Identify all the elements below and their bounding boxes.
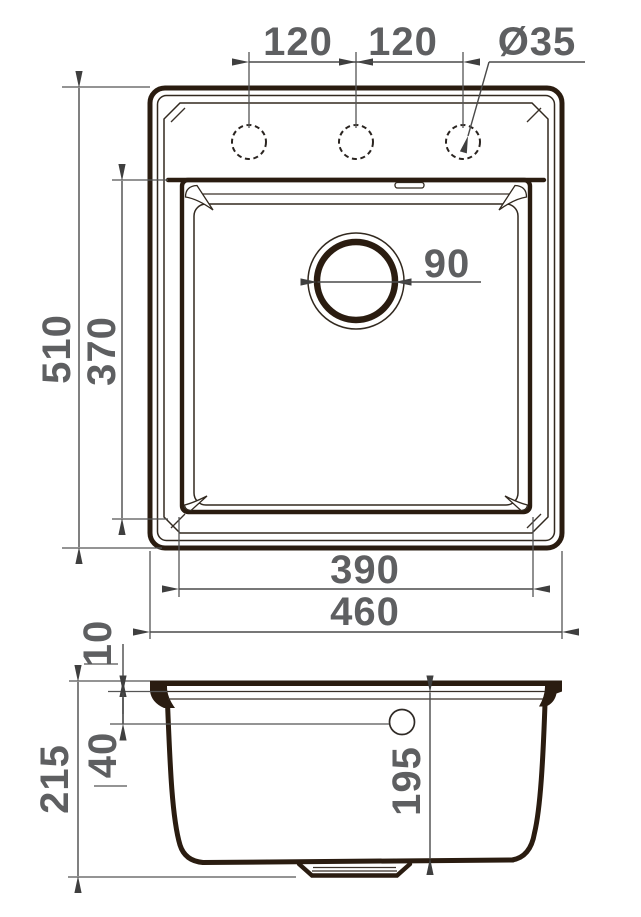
section-wall-left [168,703,204,863]
dim-label-510: 510 [35,314,79,384]
section-drain-boss [299,864,410,876]
drain-flange [308,233,404,329]
deck-corner-diamond-tr [527,108,541,122]
sink-section-view [150,681,562,876]
section-bowl-floor [203,860,513,863]
sink-drawing-canvas: 120 120 Ø35 90 510 370 390 460 [0,0,641,917]
overflow-mark [395,183,424,189]
dim-label-10: 10 [76,620,120,667]
dimension-rim-thickness-10: 10 [69,620,167,714]
sink-top-view [150,88,562,548]
dim-label-370: 370 [80,316,124,386]
dimension-rim-to-overflow-40: 40 [81,693,389,787]
technical-drawing-page: 120 120 Ø35 90 510 370 390 460 [0,0,641,917]
dimension-drain-diameter: 90 [318,242,482,286]
section-wall-right [512,704,545,860]
faucet-hole-left [232,125,266,159]
dimension-bowl-width-390: 390 [179,517,533,597]
dim-label-120-right: 120 [368,20,438,64]
dim-label-460: 460 [330,590,400,634]
overflow-hole [390,710,415,735]
dim-label-195: 195 [385,746,429,816]
deck-corner-diamond-bl [171,514,185,528]
dimension-bowl-length-370: 370 [80,180,168,519]
dim-label-390: 390 [330,548,400,592]
section-rim-top [150,681,562,687]
faucet-hole-center [339,125,373,159]
bowl-rim [182,180,530,512]
dim-label-90: 90 [424,242,471,286]
dim-label-d35: Ø35 [498,20,577,64]
faucet-hole-right [446,125,480,159]
dimension-hole-diameter: Ø35 [468,20,585,136]
dimension-overall-depth-215: 215 [33,682,296,877]
dim-label-40: 40 [81,732,125,779]
dim-label-215: 215 [33,744,77,814]
drain-hole [317,242,395,320]
dimension-hole-spacing: 120 120 [249,20,463,128]
dim-label-120-left: 120 [263,20,333,64]
